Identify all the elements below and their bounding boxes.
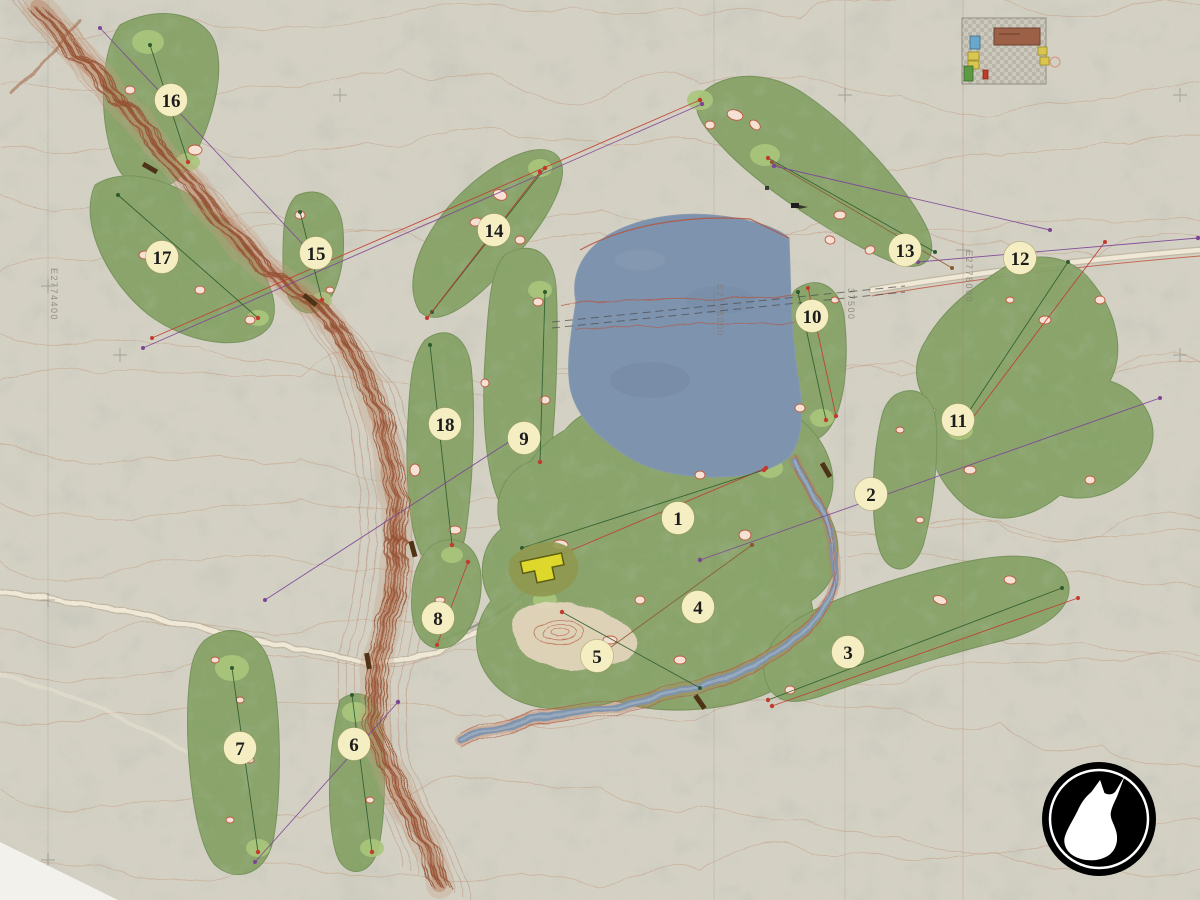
line-endpoint-dot [116,193,120,197]
bunker [125,86,135,94]
hole-number: 1 [673,509,683,530]
bunker [674,656,686,664]
line-endpoint-dot [796,290,800,294]
hole-number: 13 [896,241,915,262]
bunker [739,530,751,540]
line-endpoint-dot [750,543,754,547]
line-endpoint-dot [543,290,547,294]
line-endpoint-dot [230,666,234,670]
bunker [1085,476,1095,484]
line-endpoint-dot [298,210,302,214]
line-endpoint-dot [253,860,257,864]
bunker [964,466,976,474]
line-endpoint-dot [256,850,260,854]
line-endpoint-dot [698,98,702,102]
line-endpoint-dot [543,166,547,170]
bunker [326,287,334,293]
hole-number: 16 [162,91,181,112]
hole-marker-8: 8 [422,602,455,635]
line-endpoint-dot [698,686,702,690]
line-endpoint-dot [770,704,774,708]
green-pad [246,839,270,857]
line-endpoint-dot [1103,240,1107,244]
hole-marker-12: 12 [1004,242,1037,275]
hole-marker-13: 13 [889,234,922,267]
legend-swatch-yellow [1040,57,1049,65]
line-endpoint-dot [700,102,704,106]
bunker [195,286,205,294]
line-endpoint-dot [766,698,770,702]
bunker [481,379,489,387]
hole-number: 17 [153,248,173,269]
hole-number: 18 [436,415,455,436]
bunker [515,236,525,244]
line-endpoint-dot [770,160,774,164]
line-endpoint-dot [450,543,454,547]
bunker [896,427,904,433]
line-endpoint-dot [950,266,954,270]
legend-swatch-yellow [1038,47,1047,55]
bunker [366,797,374,803]
legend-swatch-red [983,70,988,79]
line-endpoint-dot [98,26,102,30]
line-endpoint-dot [186,160,190,164]
line-endpoint-dot [698,558,702,562]
line-endpoint-dot [824,418,828,422]
hole-marker-15: 15 [300,237,333,270]
bunker [831,297,839,303]
bunker [916,517,924,523]
line-endpoint-dot [560,610,564,614]
bunker [695,471,705,479]
hole-marker-17: 17 [146,241,179,274]
bunker [226,817,234,823]
line-endpoint-dot [1196,236,1200,240]
bunker [1039,316,1051,324]
bunker [188,145,202,155]
bunker [635,596,645,604]
line-endpoint-dot [1048,228,1052,232]
line-endpoint-dot [350,693,354,697]
line-endpoint-dot [141,346,145,350]
bunker [1095,296,1105,304]
line-endpoint-dot [806,286,810,290]
course-map-stage: E2774400E277600037500E2778000 1234567891… [0,0,1200,900]
line-endpoint-dot [933,250,937,254]
line-endpoint-dot [762,468,766,472]
hole-number: 5 [592,647,602,668]
hole-number: 14 [485,221,505,242]
hole-marker-10: 10 [796,300,829,333]
line-endpoint-dot [1066,260,1070,264]
bunker [834,211,846,219]
hole-number: 3 [843,643,853,664]
bunker [410,464,420,476]
hole-number: 8 [433,609,443,630]
hole-marker-16: 16 [155,84,188,117]
line-endpoint-dot [320,298,324,302]
line-endpoint-dot [1076,596,1080,600]
hole-marker-1: 1 [662,502,695,535]
hole-marker-5: 5 [581,640,614,673]
green-pad [528,281,552,299]
hole-number: 10 [803,307,822,328]
hole-marker-2: 2 [855,478,888,511]
hole-marker-6: 6 [338,728,371,761]
legend-swatch-blue [970,36,980,49]
bunker [1006,297,1014,303]
green-pad [360,839,384,857]
hole-number: 15 [307,244,326,265]
hole-marker-14: 14 [478,214,511,247]
green-pad [441,547,463,563]
bunker [245,316,255,324]
bunker [211,657,219,663]
green-pad [132,30,164,54]
line-endpoint-dot [538,170,542,174]
legend-swatch-yellow [968,52,979,60]
hole-number: 12 [1011,249,1030,270]
hole-number: 2 [866,485,876,506]
hole-number: 11 [949,411,967,432]
line-endpoint-dot [428,343,432,347]
hole-number: 6 [349,735,359,756]
green-pad [810,409,834,427]
grid-coordinate-label: E2774400 [49,268,59,321]
line-endpoint-dot [834,414,838,418]
line-endpoint-dot [766,156,770,160]
legend-swatch-green [964,66,973,81]
line-endpoint-dot [256,316,260,320]
hole-number: 9 [519,429,529,450]
grid-coordinate-label: 37500 [846,288,856,321]
hole-marker-18: 18 [429,408,462,441]
bunker [795,404,805,412]
line-endpoint-dot [148,43,152,47]
title-block [962,18,1060,84]
hole-marker-11: 11 [942,404,975,437]
line-endpoint-dot [1158,396,1162,400]
hole-marker-7: 7 [224,732,257,765]
hole-number: 4 [693,598,703,619]
hole-marker-4: 4 [682,591,715,624]
hole-marker-9: 9 [508,422,541,455]
title-block-building [994,28,1040,45]
line-endpoint-dot [538,460,542,464]
line-endpoint-dot [425,316,429,320]
line-endpoint-dot [435,643,439,647]
bunker [705,121,715,129]
line-endpoint-dot [396,700,400,704]
line-endpoint-dot [772,164,776,168]
hole-number: 7 [235,739,245,760]
line-endpoint-dot [150,336,154,340]
line-endpoint-dot [466,560,470,564]
course-map: E2774400E277600037500E2778000 1234567891… [0,0,1200,900]
hole-marker-3: 3 [832,636,865,669]
wolf-logo [1042,762,1156,876]
line-endpoint-dot [370,850,374,854]
line-endpoint-dot [1060,586,1064,590]
bunker [533,298,543,306]
line-endpoint-dot [263,598,267,602]
